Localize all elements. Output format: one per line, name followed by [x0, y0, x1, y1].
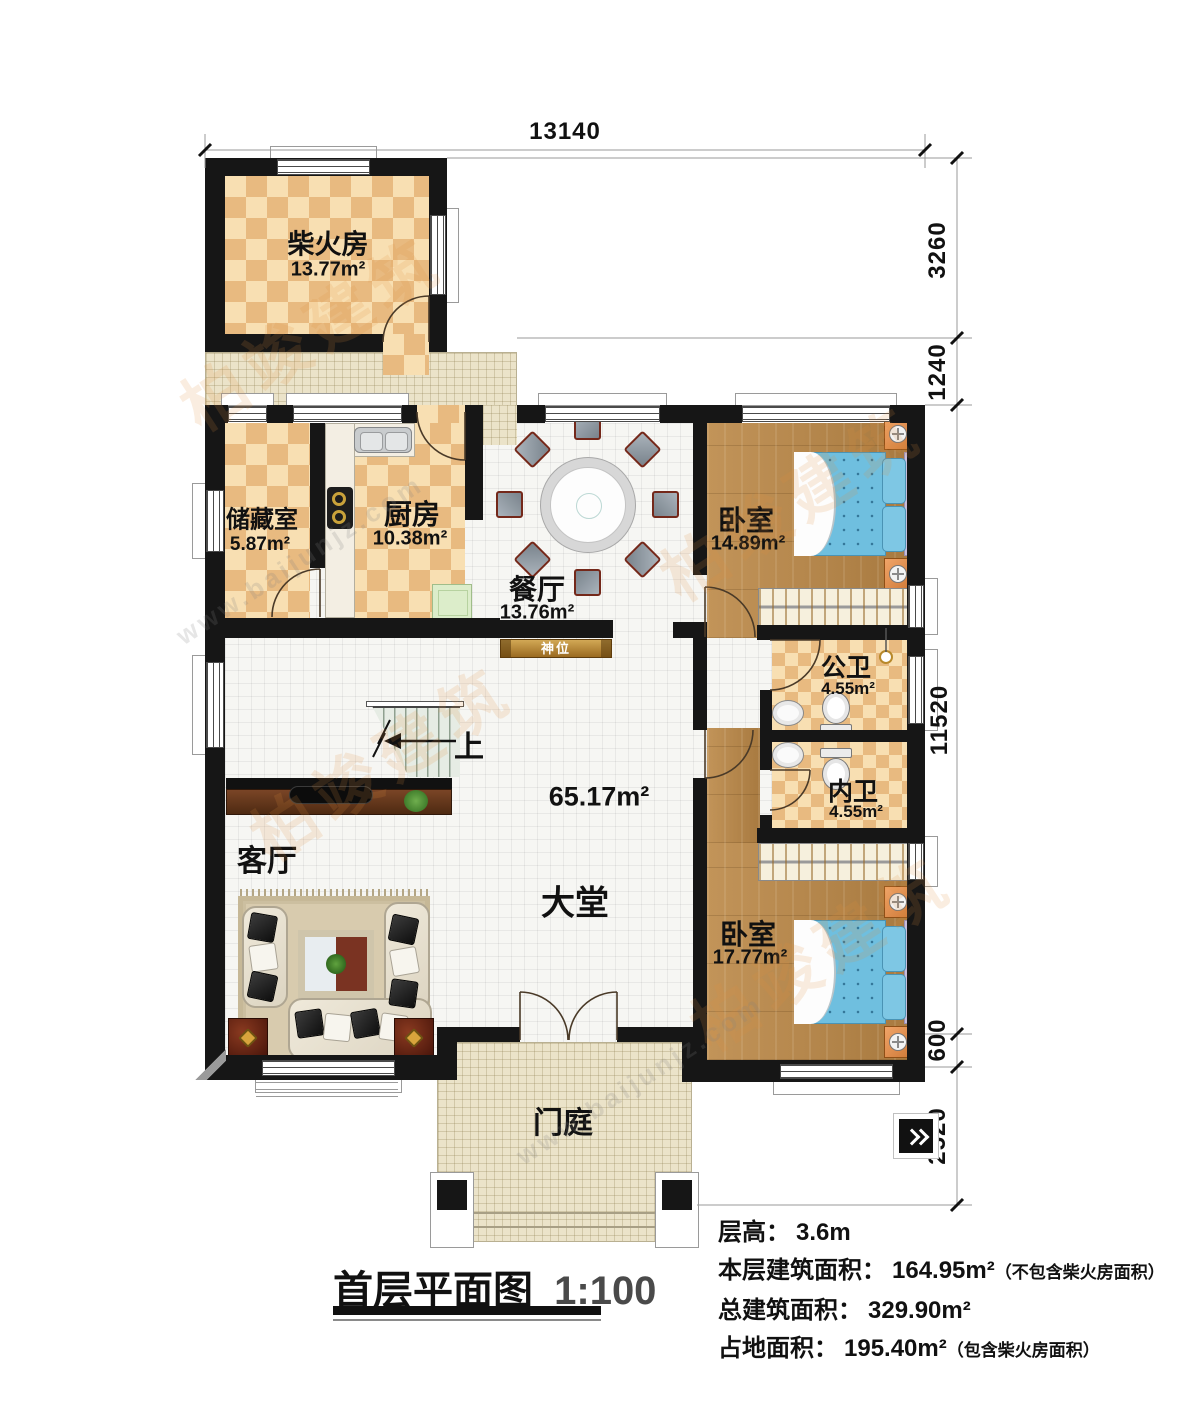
floor-plan-canvas: 神位: [0, 0, 1200, 1426]
dim-tick: [951, 1199, 963, 1211]
window-sill: [773, 1081, 900, 1095]
dim-tick: [951, 152, 963, 164]
cushion: [248, 942, 278, 972]
wall: [465, 405, 483, 520]
dim-tick: [951, 1028, 963, 1040]
wall: [907, 405, 925, 1082]
window: [908, 585, 924, 628]
wall: [402, 405, 417, 423]
window: [206, 490, 224, 552]
info-total-area: 总建筑面积：329.90m²: [718, 1290, 971, 1325]
bath-sink: [772, 742, 804, 768]
rug-fringe: [240, 889, 428, 896]
dim-label-600: 600: [924, 1018, 952, 1061]
compass-medallion-icon: [404, 1028, 424, 1048]
room-area-bedroom2: 17.77m²: [713, 947, 788, 970]
dining-chair: [652, 491, 679, 518]
room-area-storage: 5.87m²: [230, 534, 290, 556]
dim-label-11520: 11520: [926, 685, 954, 755]
wall: [757, 828, 925, 843]
window-sill: [192, 483, 206, 559]
wall: [205, 334, 383, 352]
title-underline-thin: [333, 1319, 601, 1321]
window-sill: [286, 393, 409, 406]
shrine-console: 神位: [500, 639, 612, 658]
room-name-hall: 大堂: [541, 876, 609, 925]
wall: [660, 405, 742, 423]
wall: [437, 1027, 520, 1042]
end-table: [394, 1018, 434, 1058]
window: [545, 406, 660, 422]
window: [262, 1060, 395, 1076]
dim-tick: [951, 399, 963, 411]
window-sill: [924, 836, 938, 887]
sink-bowl: [360, 432, 383, 451]
burner: [332, 510, 346, 524]
bath-sink: [772, 700, 804, 726]
window: [908, 656, 924, 724]
ceiling-lamp-icon: [879, 650, 893, 664]
dim-label-3260: 3260: [924, 221, 952, 278]
room-area-dining: 13.76m²: [500, 602, 575, 625]
room-area-kitchen: 10.38m²: [373, 528, 448, 551]
cushion: [387, 913, 419, 945]
info-floor-height: 层高：3.6m: [718, 1212, 851, 1247]
stove: [327, 487, 353, 529]
burner: [332, 492, 346, 506]
end-table: [228, 1018, 268, 1058]
room-area-bath-private: 4.55m²: [829, 802, 883, 822]
lamp-icon: [889, 425, 907, 443]
room-area-hall: 65.17m²: [549, 782, 650, 813]
shrine-label: 神位: [541, 641, 571, 656]
kitchen-door-floor: [417, 405, 465, 423]
wardrobe: [758, 843, 910, 881]
info-footprint-area: 占地面积：195.40m²（包含柴火房面积）: [718, 1328, 1100, 1363]
wall: [429, 334, 447, 352]
pillow: [882, 458, 906, 504]
dim-tick: [199, 144, 211, 156]
wall: [517, 405, 545, 423]
room-name-storage: 储藏室: [226, 500, 298, 535]
wall: [757, 625, 925, 640]
room-area-bedroom1: 14.89m²: [711, 533, 786, 556]
window-sill: [192, 655, 206, 755]
toilet-tank: [820, 748, 852, 758]
room-name-firewood: 柴火房: [288, 223, 369, 262]
lamp-icon: [889, 565, 907, 583]
porch-column: [662, 1180, 692, 1210]
window-sill: [538, 393, 667, 406]
porch-column: [437, 1180, 467, 1210]
corner-marker-icon: [192, 1046, 226, 1080]
window: [228, 406, 267, 422]
dim-tick: [919, 144, 931, 156]
porch-step-line: [437, 1212, 692, 1214]
window: [277, 159, 370, 175]
brand-logo-icon: [899, 1119, 933, 1153]
cushion: [247, 912, 278, 943]
hallway-floor: [707, 728, 760, 843]
plant-icon: [326, 954, 346, 974]
title-underline: [333, 1306, 601, 1315]
dim-label-top: 13140: [529, 118, 601, 146]
kitchen-sink: [354, 427, 412, 453]
cushion: [246, 970, 278, 1002]
pillow: [882, 974, 906, 1020]
cushion: [323, 1013, 353, 1043]
tv: [289, 786, 373, 804]
window: [742, 406, 890, 422]
kitchen-side-table: [432, 584, 472, 620]
pillow: [882, 926, 906, 972]
room-name-living: 客厅: [237, 836, 297, 880]
lamp-icon: [889, 893, 907, 911]
wall: [673, 622, 707, 638]
dim-label-1240: 1240: [924, 343, 952, 400]
room-area-firewood: 13.77m²: [291, 259, 366, 282]
compass-medallion-icon: [238, 1028, 258, 1048]
wall: [205, 158, 225, 352]
wall: [310, 423, 325, 568]
coffee-table: [298, 930, 374, 998]
window-sill: [735, 393, 897, 406]
firewood-door-floor: [383, 334, 429, 375]
brand-logo: [893, 1113, 939, 1159]
wall: [267, 405, 293, 423]
dim-tick: [951, 332, 963, 344]
window-sill: [446, 208, 459, 303]
window-sill: [924, 578, 938, 635]
dim-tick: [951, 1061, 963, 1073]
cushion: [389, 946, 420, 977]
lamp-icon: [889, 1033, 907, 1051]
info-floor-area: 本层建筑面积：164.95m²（不包含柴火房面积）: [718, 1250, 1165, 1285]
dining-chair: [496, 491, 523, 518]
wall: [693, 637, 707, 730]
wall: [205, 618, 500, 638]
window: [430, 215, 446, 295]
window: [293, 406, 402, 422]
pillow: [882, 506, 906, 552]
room-name-porch: 门庭: [533, 1098, 593, 1142]
dining-chair: [574, 569, 601, 596]
porch-step-line: [437, 1226, 692, 1228]
window: [206, 662, 224, 748]
window: [908, 843, 924, 880]
room-area-bath-public: 4.55m²: [821, 679, 875, 699]
cushion: [294, 1008, 324, 1038]
plant-icon: [404, 790, 428, 812]
stairs-up-label: 上: [454, 722, 484, 766]
window: [780, 1064, 893, 1079]
dining-entry-mat: [483, 405, 517, 445]
cushion: [350, 1008, 381, 1039]
sink-bowl: [385, 432, 408, 451]
wall: [760, 730, 925, 742]
wardrobe: [758, 588, 910, 626]
entry-steps: [256, 1082, 398, 1103]
cushion: [388, 978, 418, 1008]
wall: [693, 423, 707, 575]
dining-table: [540, 457, 636, 553]
